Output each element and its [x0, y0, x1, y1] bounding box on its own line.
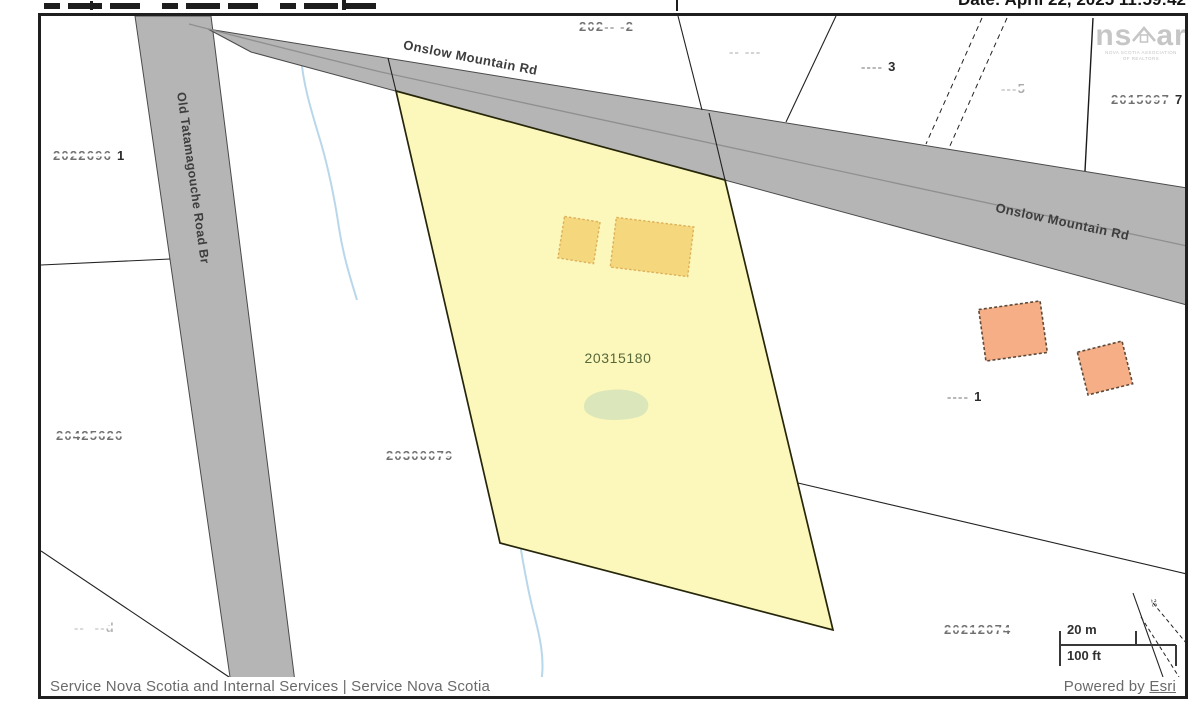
stream-line-upper	[301, 56, 357, 300]
parcel-line-dashed	[926, 18, 982, 144]
parcel-line	[1133, 593, 1163, 677]
parcel-number-faint: -- --d	[74, 620, 115, 635]
esri-link[interactable]: Esri	[1149, 678, 1176, 695]
selected-parcel-pid: 20315180	[563, 350, 673, 366]
parcel-number-text: -- --d	[74, 620, 115, 635]
parcel-line-dashed	[1153, 603, 1187, 644]
parcel-number-faint: -- ---	[729, 44, 761, 59]
parcel-line	[786, 16, 836, 122]
parcel-number-suffix: 1	[117, 148, 124, 163]
parcel-number-text: 20	[1149, 599, 1157, 609]
parcel-number-text: 202-- -2	[579, 19, 634, 34]
building-footprint	[979, 301, 1048, 361]
parcel-number-text: ----	[861, 59, 883, 74]
parcel-number-text: 20300079	[386, 448, 453, 463]
parcel-number-faint: 20	[1149, 599, 1157, 609]
vegetation-patch	[584, 389, 648, 420]
attribution-bar: Service Nova Scotia and Internal Service…	[41, 677, 1185, 696]
parcel-number-text: 20212074	[944, 622, 1011, 637]
building-footprint	[610, 217, 694, 276]
parcel-number-text: 2022696	[53, 148, 112, 163]
parcel-number-suffix: 7	[1175, 92, 1182, 107]
parcel-line	[41, 259, 170, 265]
parcel-number-faint: ---- 1	[947, 389, 981, 404]
report-date-text: Date: April 22, 2025 11:59:42	[928, 0, 1186, 10]
nsar-logo: ns ar NOVA SCOTIA ASSOCIATION OF REALTOR…	[1091, 22, 1188, 62]
parcel-number-text: ---5	[1001, 81, 1026, 96]
parcel-number-text: -- ---	[729, 44, 761, 59]
clipped-title-descender	[676, 0, 678, 11]
parcel-line	[41, 551, 229, 677]
clipped-title-descender	[342, 0, 346, 10]
parcel-number-text: 20425626	[56, 428, 123, 443]
building-footprint	[1077, 341, 1132, 395]
nsar-logo-ar: ar	[1156, 19, 1186, 52]
parcel-number-faint: ---- 3	[861, 59, 895, 74]
parcel-number-suffix: 3	[888, 59, 895, 74]
map-canvas[interactable]: Onslow Mountain Rd Onslow Mountain Rd Ol…	[38, 13, 1188, 699]
nsar-logo-caption-2: OF REALTORS	[1091, 56, 1188, 62]
parcel-number-faint: ---5	[1001, 81, 1026, 96]
scale-imperial-label: 100 ft	[1067, 648, 1101, 663]
clipped-title-fragments	[44, 3, 384, 9]
scale-metric-label: 20 m	[1067, 622, 1097, 637]
parcel-number-text: ----	[947, 389, 969, 404]
parcel-line	[678, 16, 702, 110]
parcel-number-faint: 2015097 7	[1111, 92, 1182, 107]
building-footprint	[558, 216, 600, 263]
stream-line-lower	[520, 544, 543, 696]
clipped-title-descender	[90, 1, 93, 10]
nsar-logo-ns: ns	[1095, 19, 1132, 52]
parcel-line-dashed	[949, 18, 1007, 148]
attribution-text: Service Nova Scotia and Internal Service…	[50, 678, 490, 695]
parcel-number-faint: 20212074	[944, 622, 1011, 637]
parcel-number-text: 2015097	[1111, 92, 1170, 107]
powered-by: Powered by Esri	[1064, 678, 1176, 695]
report-date: Date: April 22, 2025 11:59:42	[928, 0, 1186, 10]
parcel-line	[798, 483, 1187, 574]
parcel-number-faint: 20300079	[386, 448, 453, 463]
parcel-number-faint: 202-- -2	[579, 19, 634, 34]
parcel-number-suffix: 1	[974, 389, 981, 404]
powered-by-text: Powered by	[1064, 678, 1150, 695]
parcel-number-faint: 20425626	[56, 428, 123, 443]
house-icon	[1131, 22, 1157, 48]
parcel-number-faint: 2022696 1	[53, 148, 124, 163]
road-old-tatamagouche	[135, 16, 297, 698]
